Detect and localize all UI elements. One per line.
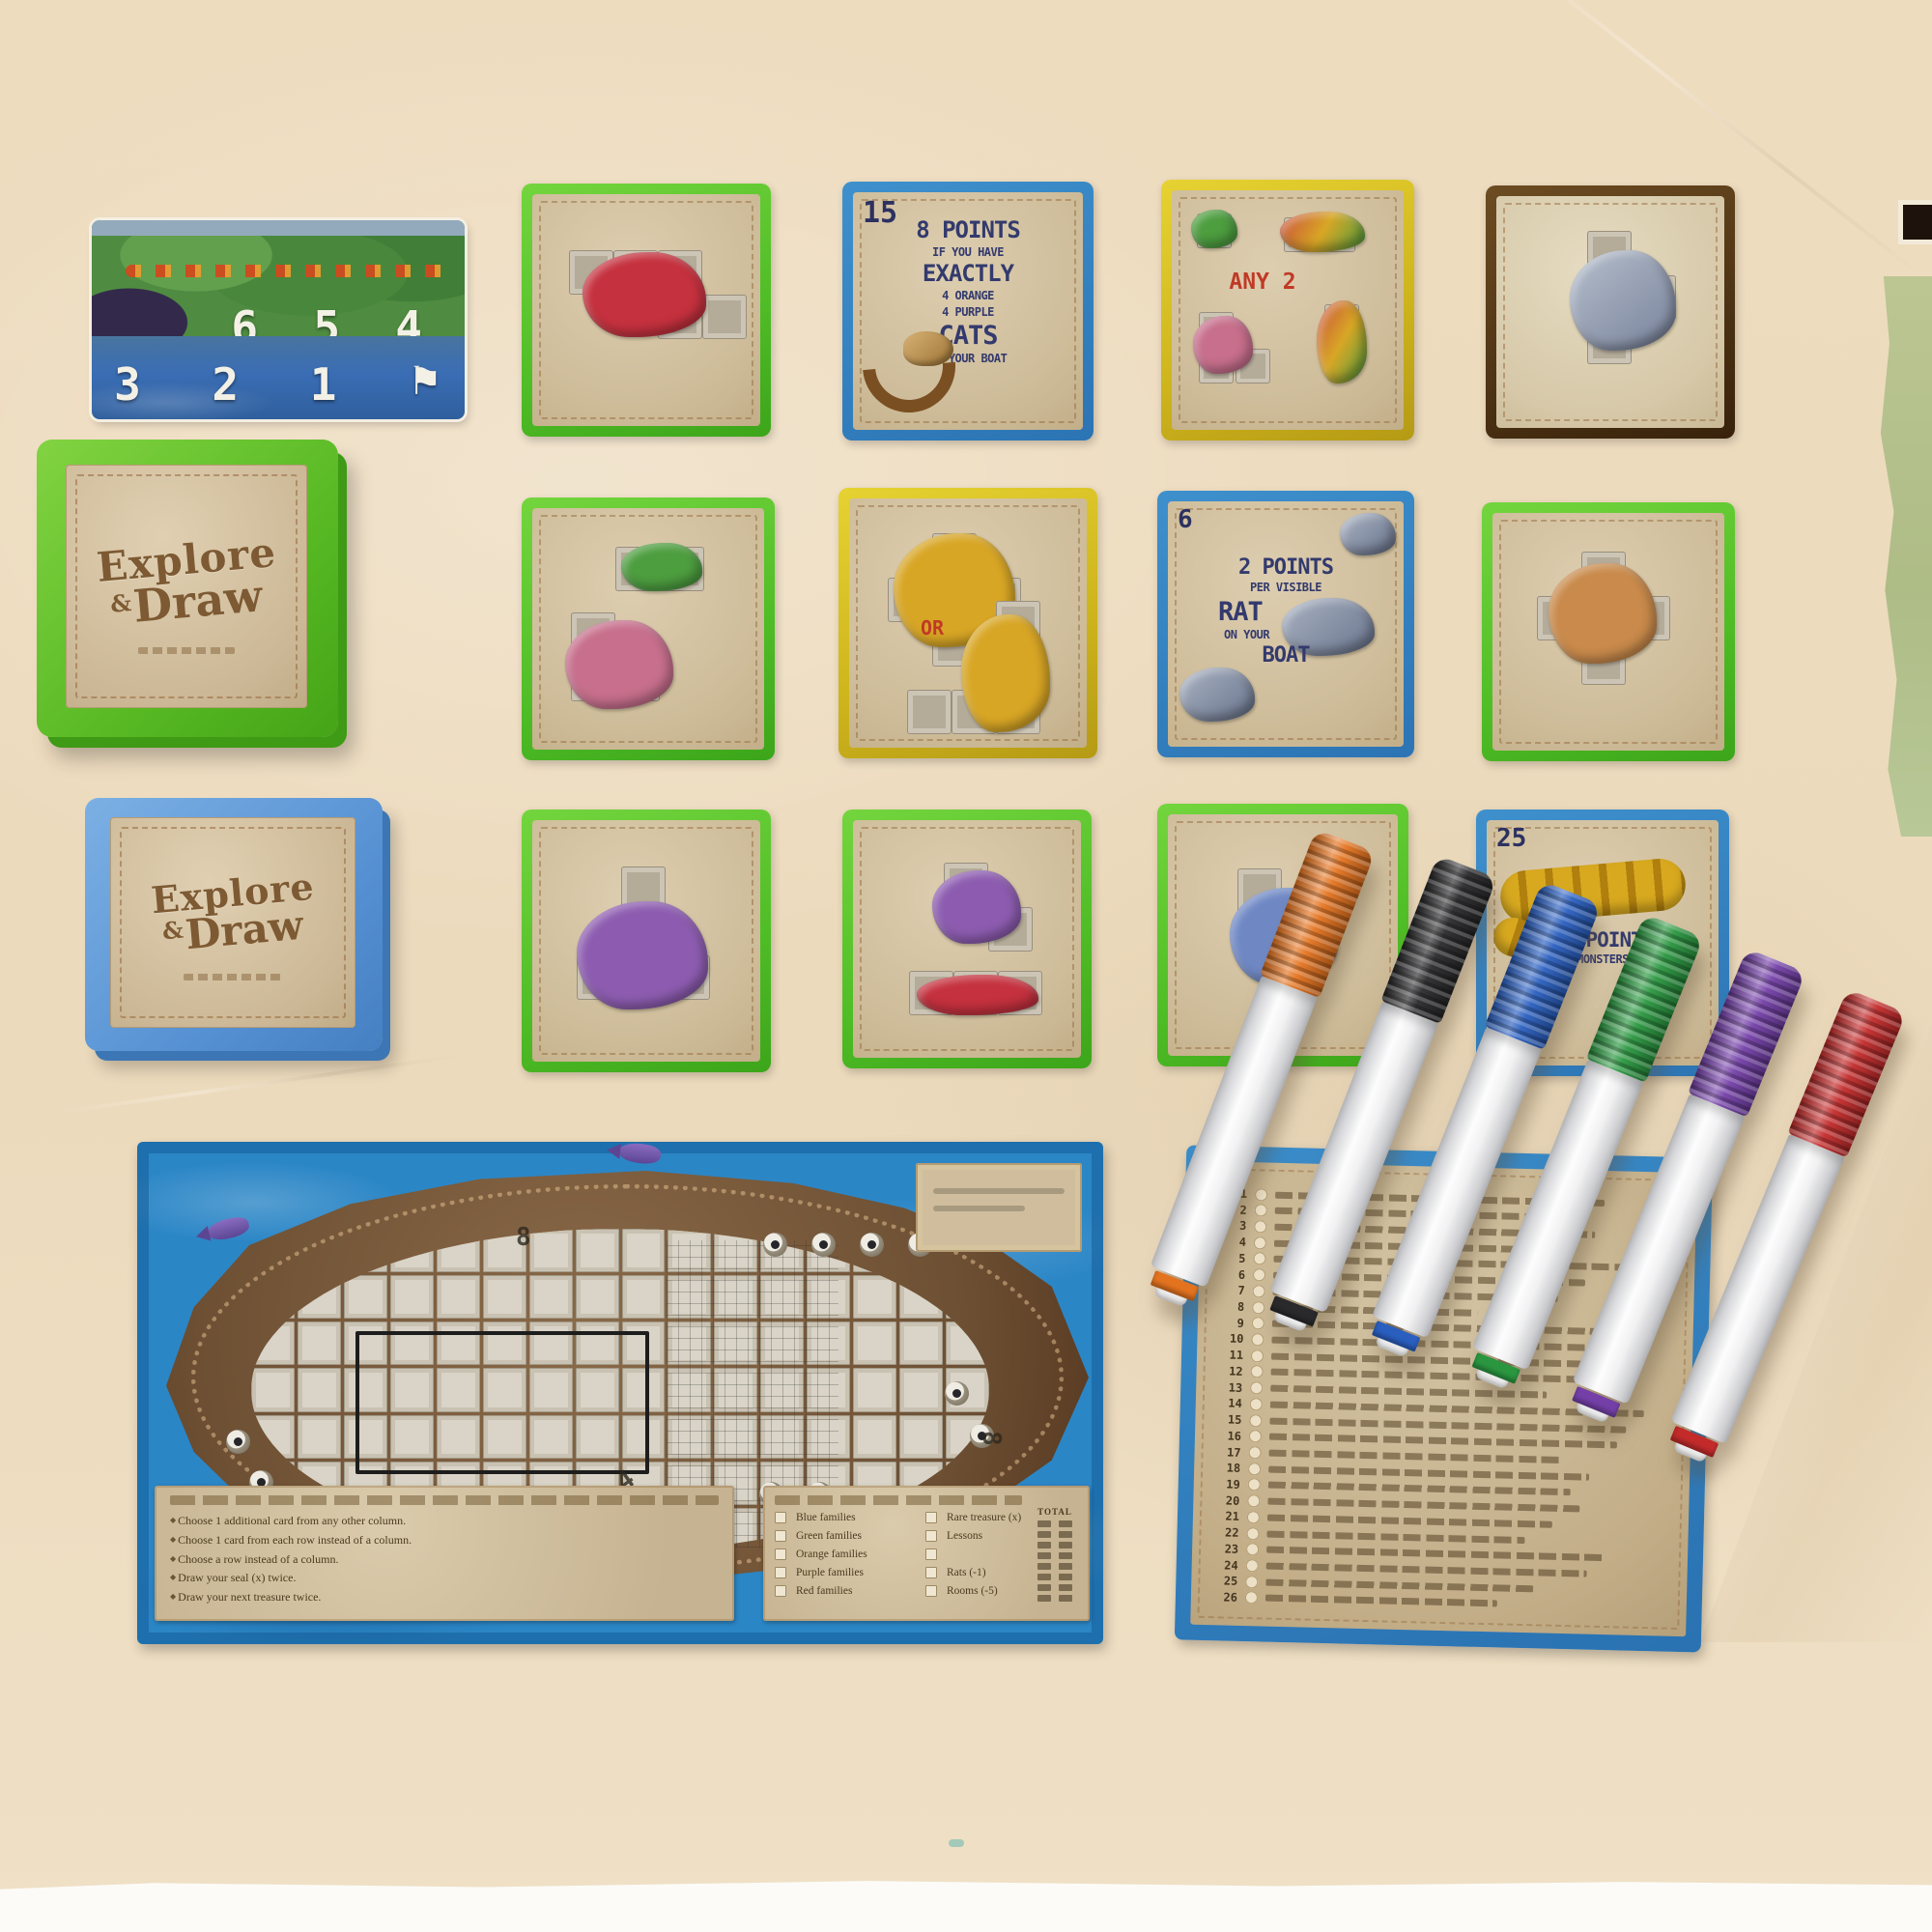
total-cell: [1059, 1542, 1072, 1548]
lesson-checkbox: [1248, 1479, 1261, 1492]
silver-creature-icon: [1570, 250, 1676, 351]
deck-subtitle-line: [138, 647, 235, 654]
deck-tile: [622, 1275, 666, 1319]
deck-tile: [483, 1275, 526, 1319]
card-face: 6 2 POINTS PER VISIBLE RAT ON YOUR BOAT: [1168, 501, 1404, 747]
paper-crease: [60, 1054, 462, 1114]
card-face: [532, 194, 760, 426]
flag-icon: ⚑: [408, 362, 442, 407]
deck-tile: [437, 1275, 480, 1319]
deck-tile: [390, 1275, 434, 1319]
exploration-card-two-shapes: [522, 497, 775, 760]
lesson-text-line: [1269, 1434, 1617, 1449]
deck-tile: [529, 1275, 573, 1319]
lesson-text-line: [1267, 1498, 1579, 1513]
discovery-actions-panel: Choose 1 additional card from any other …: [155, 1486, 734, 1621]
torn-paper-edge: [1859, 276, 1932, 837]
lesson-text-line: [1268, 1482, 1572, 1496]
pink-creature-icon: [1193, 316, 1253, 374]
lesson-checkbox: [1247, 1511, 1260, 1523]
ampersand-glyph: &: [161, 916, 185, 946]
score-checkbox: [925, 1567, 937, 1578]
total-cell: [1037, 1563, 1051, 1570]
ampersand-glyph: &: [109, 588, 132, 618]
porthole-icon: [811, 1233, 836, 1257]
lesson-number: 17: [1219, 1445, 1240, 1460]
lesson-checkbox: [1248, 1463, 1261, 1475]
green-creature-icon: [621, 543, 702, 591]
round-tracker-tile: 654 321⚑: [92, 220, 465, 419]
lesson-number: 22: [1217, 1525, 1238, 1540]
lesson-checkbox: [1250, 1366, 1263, 1378]
lesson-number: 4: [1225, 1236, 1246, 1250]
lesson-checkbox: [1245, 1592, 1258, 1605]
total-cell: [1037, 1531, 1051, 1538]
discovery-card-or: OR: [838, 488, 1097, 758]
lesson-checkbox: [1255, 1204, 1267, 1216]
name-line: [933, 1188, 1065, 1194]
deck-tile: [853, 1321, 896, 1365]
score-label: Green families: [796, 1530, 920, 1542]
total-cell: [1059, 1584, 1072, 1591]
name-line: [933, 1206, 1025, 1211]
purple-creature-icon: [932, 870, 1021, 944]
lesson-text-line: [1265, 1595, 1497, 1607]
deck-tile: [853, 1368, 896, 1411]
card-face: OR: [849, 498, 1087, 748]
card-label: OR: [903, 616, 961, 639]
multicolor-creature-icon: [1280, 212, 1365, 252]
panel-header: [170, 1495, 719, 1505]
blue-lesson-deck: Explore &Draw: [85, 798, 383, 1051]
lesson-card-orange-purple-cats: 15 8 POINTS IF YOU HAVE EXACTLY 4 ORANGE…: [842, 182, 1094, 440]
logo-word-2: Draw: [131, 569, 265, 632]
cabin-outline: [355, 1331, 649, 1474]
lesson-checkbox: [1249, 1430, 1262, 1442]
lesson-number: 21: [1218, 1510, 1239, 1524]
lesson-number: 6: [1224, 1267, 1245, 1282]
score-checkbox: [775, 1512, 786, 1523]
lesson-text-line: [1268, 1450, 1562, 1463]
score-label: Blue families: [796, 1512, 920, 1523]
lesson-row: 19: [1219, 1477, 1664, 1501]
card-text-line: 4 ORANGE: [853, 288, 1083, 304]
marker-cap: [1788, 988, 1907, 1157]
purple-fish-icon: [205, 1214, 251, 1243]
orange-cat-icon: [1548, 563, 1657, 664]
lesson-checkbox: [1250, 1398, 1263, 1410]
lesson-row: 18: [1219, 1462, 1664, 1486]
explore-draw-logo: Explore &Draw: [66, 536, 307, 628]
lesson-checkbox: [1253, 1268, 1265, 1281]
actions-list: Choose 1 additional card from any other …: [170, 1512, 719, 1607]
green-creature-icon: [1191, 210, 1237, 248]
lesson-text-line: [1271, 1369, 1583, 1383]
water-art: 321⚑: [92, 336, 465, 419]
deck-tile: [529, 1229, 573, 1272]
lesson-number: 26: [1216, 1590, 1237, 1605]
score-checkbox: [775, 1548, 786, 1560]
score-checkbox: [925, 1512, 937, 1523]
lesson-row: 17: [1219, 1445, 1664, 1469]
lesson-checkbox: [1254, 1220, 1266, 1233]
lesson-checkbox: [1246, 1559, 1259, 1572]
lesson-row: 26: [1216, 1590, 1662, 1614]
total-cell: [1037, 1574, 1051, 1580]
total-cell: [1059, 1531, 1072, 1538]
lesson-number: 14: [1221, 1397, 1242, 1411]
lesson-text-line: [1268, 1465, 1589, 1480]
lesson-number: 12: [1221, 1364, 1242, 1378]
total-cell: [1059, 1595, 1072, 1602]
lesson-text-line: [1266, 1530, 1524, 1544]
lesson-checkbox: [1246, 1527, 1259, 1540]
deck-tile: [899, 1321, 943, 1365]
garland-icon: [126, 265, 450, 277]
polyomino-tile: [702, 295, 747, 339]
score-checkbox: [775, 1530, 786, 1542]
card-text-line: 2 POINTS: [1168, 555, 1404, 580]
red-creature-icon: [917, 975, 1038, 1015]
lesson-number: 10: [1222, 1332, 1243, 1347]
lesson-card-rats: 6 2 POINTS PER VISIBLE RAT ON YOUR BOAT: [1157, 491, 1414, 757]
lesson-text-line: [1267, 1514, 1552, 1527]
deck-tile: [576, 1275, 619, 1319]
explore-draw-logo: Explore &Draw: [110, 871, 355, 954]
lesson-number: 24: [1217, 1558, 1238, 1573]
lesson-row: 23: [1217, 1542, 1662, 1566]
score-checkbox: [925, 1585, 937, 1597]
total-label: TOTAL: [1030, 1507, 1080, 1517]
exploration-card-s-shape: [522, 184, 771, 437]
total-cell: [1059, 1563, 1072, 1570]
card-label: ANY 2: [1122, 270, 1404, 295]
lesson-row: 22: [1217, 1525, 1662, 1549]
lesson-number: 7: [1224, 1284, 1245, 1298]
total-cell: [1037, 1552, 1051, 1559]
player-name-plate: [916, 1163, 1082, 1252]
deck-tile: [853, 1275, 896, 1319]
boat-player-board: 8 4 8 Choose 1 additional card from any …: [137, 1142, 1103, 1644]
exploration-card-two-shapes: [842, 810, 1092, 1068]
card-number: 25: [1496, 824, 1526, 853]
deck-tile: [853, 1415, 896, 1459]
lesson-checkbox: [1254, 1236, 1266, 1249]
island-art: 654: [92, 220, 465, 336]
panel-header: [775, 1495, 1022, 1505]
red-creature-icon: [582, 252, 706, 337]
lesson-text-line: [1265, 1578, 1533, 1592]
total-cell: [1037, 1520, 1051, 1527]
lesson-number: 25: [1216, 1575, 1237, 1589]
logo-word-1: Explore: [64, 526, 308, 594]
card-text-line: ON YOUR: [1168, 627, 1404, 643]
lesson-text-line: [1271, 1337, 1609, 1352]
deck-subtitle-line: [184, 974, 282, 980]
lesson-checkbox: [1248, 1446, 1261, 1459]
lesson-checkbox: [1255, 1188, 1267, 1201]
card-face: [853, 820, 1081, 1058]
lesson-number: 20: [1218, 1493, 1239, 1508]
card-text-line: RAT: [1168, 597, 1404, 627]
tracker-bottom-row: 321⚑: [114, 362, 442, 407]
lesson-checkbox: [1251, 1350, 1264, 1362]
card-text-line: PER VISIBLE: [1168, 580, 1404, 596]
lesson-number: 5: [1224, 1251, 1245, 1265]
lesson-text-line: [1272, 1321, 1629, 1336]
table-edge: [0, 1880, 1932, 1932]
deck-tile: [622, 1229, 666, 1272]
box-edge-mark: [1903, 205, 1932, 240]
card-face: [1496, 196, 1724, 428]
score-checkbox: [775, 1585, 786, 1597]
lesson-row: 25: [1216, 1575, 1662, 1599]
card-text-line: IF YOU HAVE: [853, 244, 1083, 261]
lesson-row: 24: [1217, 1558, 1662, 1582]
total-cell: [1059, 1520, 1072, 1527]
lesson-number: 11: [1222, 1349, 1243, 1363]
card-face: [1492, 513, 1724, 751]
deck-label: Explore &Draw: [110, 817, 355, 1028]
deck-tile: [298, 1321, 341, 1365]
lesson-text-line: [1266, 1547, 1605, 1562]
deck-tile: [899, 1368, 943, 1411]
lesson-checkbox: [1253, 1285, 1265, 1297]
logo-word-1: Explore: [109, 861, 357, 925]
card-face: [532, 820, 760, 1062]
card-face: [532, 508, 764, 750]
lesson-row: 21: [1218, 1510, 1663, 1534]
card-face: ANY 2: [1172, 190, 1404, 430]
total-column: TOTAL: [1030, 1507, 1080, 1611]
deck-label: Explore &Draw: [66, 465, 307, 708]
porthole-icon: [763, 1233, 787, 1257]
total-cell: [1037, 1542, 1051, 1548]
lesson-number: 15: [1220, 1412, 1241, 1427]
deck-tile: [899, 1415, 943, 1459]
discovery-card-any-2: ANY 2: [1161, 180, 1414, 440]
lesson-checkbox: [1251, 1333, 1264, 1346]
card-face: 15 8 POINTS IF YOU HAVE EXACTLY 4 ORANGE…: [853, 192, 1083, 430]
card-number: 15: [863, 196, 897, 230]
lesson-checkbox: [1250, 1381, 1263, 1394]
action-text: Draw your seal (x) twice.: [170, 1569, 719, 1588]
porthole-icon: [860, 1233, 884, 1257]
lesson-number: 23: [1217, 1542, 1238, 1556]
score-checkbox: [925, 1548, 937, 1560]
total-cell: [1059, 1574, 1072, 1580]
card-text-line: EXACTLY: [853, 261, 1083, 288]
card-number: 6: [1178, 505, 1193, 534]
purple-octopus-icon: [577, 901, 708, 1009]
green-exploration-deck: Explore &Draw: [37, 440, 338, 737]
deck-tile: [251, 1368, 295, 1411]
lesson-text-line: [1269, 1417, 1626, 1433]
stray-mark: [949, 1839, 964, 1847]
tracker-number: 2: [212, 362, 239, 407]
score-label: Red families: [796, 1585, 920, 1597]
rat-icon: [1179, 668, 1255, 722]
lesson-number: 18: [1219, 1462, 1240, 1476]
tracker-number: 3: [114, 362, 141, 407]
deck-tile: [298, 1368, 341, 1411]
deck-tile: [344, 1275, 387, 1319]
scoring-panel: Blue familiesRare treasure (x)Green fami…: [763, 1486, 1090, 1621]
tracker-number: 1: [310, 362, 337, 407]
card-text-line: BOAT: [1168, 643, 1404, 668]
porthole-icon: [945, 1381, 969, 1406]
action-text: Choose 1 card from each row instead of a…: [170, 1531, 719, 1550]
score-checkbox: [775, 1567, 786, 1578]
action-text: Choose a row instead of a column.: [170, 1550, 719, 1570]
lesson-checkbox: [1249, 1414, 1262, 1427]
action-text: Draw your next treasure twice.: [170, 1588, 719, 1607]
total-cell: [1059, 1552, 1072, 1559]
multicolor-creature-icon: [1317, 300, 1367, 384]
lesson-checkbox: [1247, 1494, 1260, 1507]
score-label: Orange families: [796, 1548, 920, 1560]
pink-creature-icon: [565, 620, 673, 709]
lesson-number: 9: [1223, 1316, 1244, 1330]
lesson-number: 8: [1223, 1299, 1244, 1314]
deck-digit: 8: [516, 1223, 531, 1252]
lesson-checkbox: [1253, 1253, 1265, 1265]
score-label: Purple families: [796, 1567, 920, 1578]
logo-word-2: Draw: [184, 901, 305, 958]
lesson-checkbox: [1246, 1543, 1259, 1555]
total-cell: [1037, 1595, 1051, 1602]
porthole-icon: [226, 1430, 250, 1454]
lesson-checkbox: [1245, 1576, 1258, 1588]
lesson-number: 19: [1219, 1477, 1240, 1492]
lesson-text-line: [1266, 1563, 1587, 1577]
rare-card-t-shape: [1486, 185, 1735, 439]
lesson-number: 13: [1221, 1380, 1242, 1395]
photo-backdrop: 654 321⚑ Explore &Draw Explore &Draw: [0, 0, 1932, 1932]
purple-fish-icon: [617, 1142, 662, 1165]
score-checkbox: [925, 1530, 937, 1542]
total-cell: [1037, 1584, 1051, 1591]
exploration-card-t-shape: [522, 810, 771, 1072]
lesson-checkbox: [1252, 1317, 1264, 1329]
lesson-number: 16: [1220, 1429, 1241, 1443]
lesson-row: 20: [1218, 1493, 1663, 1518]
action-text: Choose 1 additional card from any other …: [170, 1512, 719, 1531]
deck-tile: [576, 1229, 619, 1272]
deck-tile: [298, 1415, 341, 1459]
polyomino-tile: [907, 690, 952, 734]
exploration-card-cross: [1482, 502, 1735, 761]
total-grid: [1030, 1520, 1080, 1602]
yellow-creature-icon: [961, 614, 1050, 732]
card-text-line: 4 PURPLE: [853, 304, 1083, 321]
cat-icon: [903, 331, 953, 366]
deck-digit: 8: [977, 1431, 1006, 1446]
lesson-row: 16: [1220, 1429, 1665, 1453]
rat-icon: [1340, 513, 1396, 555]
